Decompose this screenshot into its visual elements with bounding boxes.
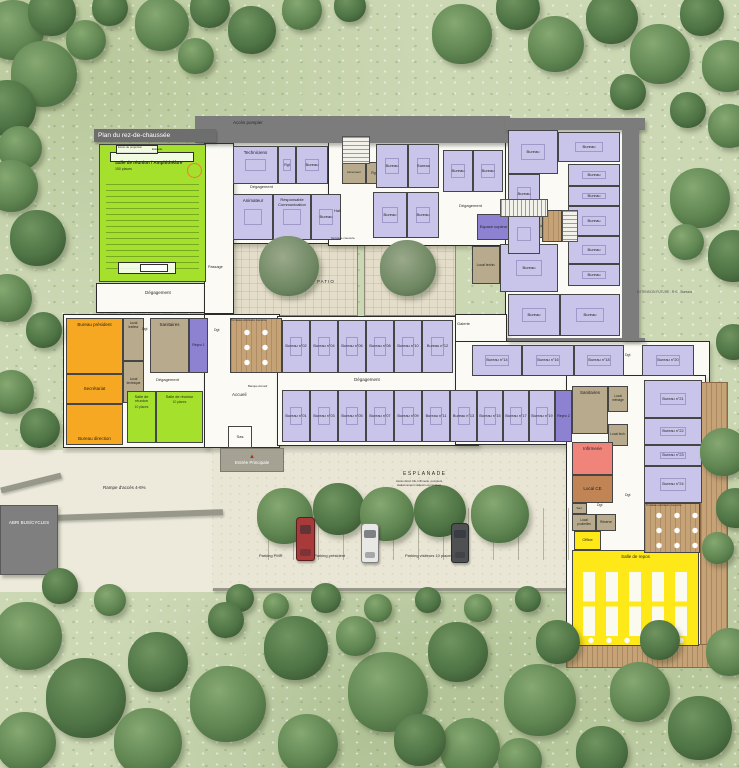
label-parking-pmr: Parking PMR: [259, 554, 283, 558]
label-galerie: Galerie: [457, 322, 470, 326]
annotations-layer: Accès pompierDégagementHallDégagementPas…: [0, 0, 739, 768]
label-parking-visiteurs: Parking visiteurs 10 places: [405, 554, 453, 558]
label-terrasse-ouest-lbl: Terrasse extérieure couverte: [231, 319, 266, 322]
label-estrade: Estrade: [152, 148, 162, 151]
label-hall: Hall: [334, 209, 341, 213]
label-rampe: Rampe d'accès 4-6%: [103, 486, 146, 491]
label-degagement-centre-nord: Dégagement: [459, 204, 482, 208]
label-dgt-2: Dgt: [214, 329, 219, 333]
label-patio: PATIO: [317, 280, 335, 285]
label-degagement-nord: Dégagement: [250, 185, 273, 189]
label-ecran: Ecran de projection: [118, 146, 142, 149]
label-accueil: Accueil: [232, 393, 247, 398]
label-salle-amphi: Salle de réunion / Amphithéâtre: [115, 161, 182, 166]
label-extension-future: EXTENSION FUTURE . R+1 : Bureaux: [637, 291, 692, 295]
label-dgt-4: Dgt: [625, 494, 630, 498]
site-plan-rez-de-chaussee: TechniciensRgtBureauAnimateurResponsable…: [0, 0, 739, 768]
label-dgt-5: Dgt: [597, 504, 602, 508]
label-acces-pompier: Accès pompier: [233, 121, 263, 126]
label-terrasse-hall-lbl: Terrasse couverte: [331, 237, 355, 240]
label-dgt-1: Dgt: [142, 328, 147, 332]
label-amphi-places: 150 places: [115, 168, 132, 172]
label-esplanade: ESPLANADE: [403, 472, 447, 478]
label-parking-president: Parking président: [314, 554, 345, 558]
label-degagement-centre: Dégagement: [354, 378, 380, 383]
label-degagement-ouest: Dégagement: [156, 378, 179, 382]
label-terrasse-se-lbl: Terrasse extérieure couverte: [646, 504, 681, 507]
label-esplanade-sub2: stationnement visiteurs et président: [397, 484, 441, 487]
label-passage: Passage: [208, 265, 223, 269]
label-degagement-amphi: Dégagement: [145, 291, 171, 296]
label-dgt-3: Dgt: [625, 354, 630, 358]
label-banque-accueil: Banque Accueil: [248, 385, 267, 388]
